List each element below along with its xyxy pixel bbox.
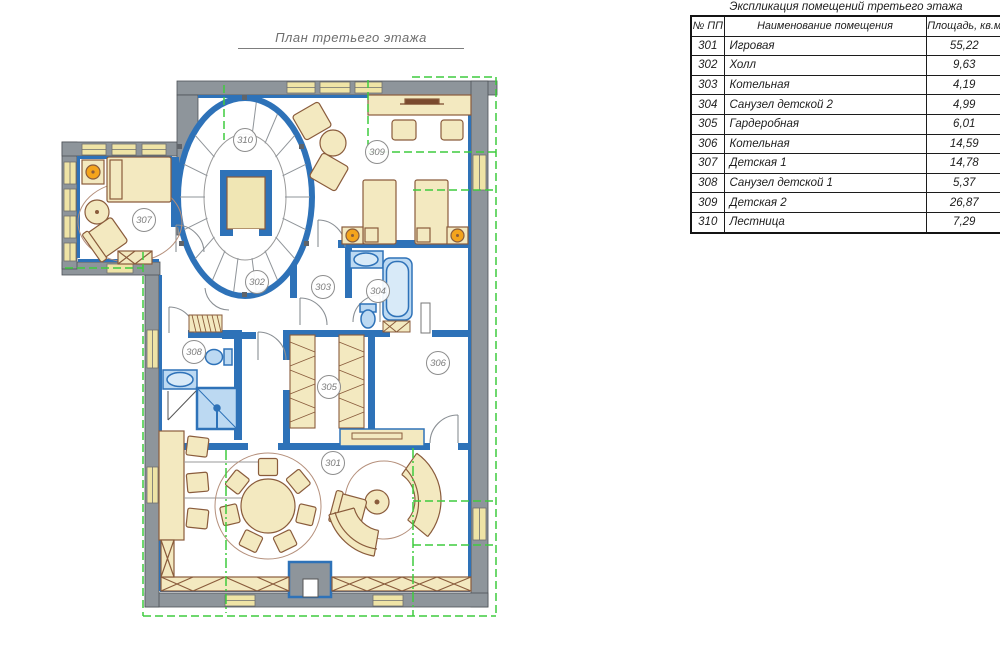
room-badge-306: 306 <box>426 351 450 375</box>
door-leaf-306 <box>421 303 430 333</box>
curved-bench-icon <box>402 453 441 536</box>
room-schedule: Экспликация помещений третьего этажа № П… <box>690 0 1000 234</box>
room-badge-302: 302 <box>245 270 269 294</box>
dining-table-icon <box>241 479 295 533</box>
schedule-row: 301Игровая55,22 <box>691 36 1000 56</box>
curved-bench-icon <box>329 508 379 556</box>
room-307-furniture <box>78 157 182 264</box>
armchair-icon <box>309 152 349 191</box>
room-badge-309: 309 <box>365 140 389 164</box>
schedule-row: 308Санузел детской 15,37 <box>691 173 1000 193</box>
col-number: № ПП <box>691 16 724 36</box>
room-badge-307: 307 <box>132 208 156 232</box>
room-badge-305: 305 <box>317 375 341 399</box>
counter-desk-icon <box>159 431 184 540</box>
plan-title: План третьего этажа <box>238 30 464 49</box>
room-badge-304: 304 <box>366 279 390 303</box>
chair-icon <box>186 508 209 529</box>
schedule-row: 304Санузел детской 24,99 <box>691 95 1000 115</box>
shower-icon <box>197 388 237 429</box>
room-309-furniture <box>292 95 471 244</box>
room-badge-308: 308 <box>182 340 206 364</box>
page: План третьего этажа 301 302 303 304 305 … <box>0 0 1000 666</box>
toilet-icon <box>206 349 233 365</box>
toilet-icon <box>360 304 376 328</box>
room-badge-303: 303 <box>311 275 335 299</box>
chimney-icon <box>289 562 331 597</box>
schedule-row: 306Котельная14,59 <box>691 134 1000 154</box>
room-301-furniture <box>159 429 471 597</box>
col-area: Площадь, кв.м <box>926 16 1000 36</box>
schedule-table: № ПП Наименование помещения Площадь, кв.… <box>690 15 1000 234</box>
round-table-icon <box>320 130 346 156</box>
tv-cabinet-icon <box>340 429 424 446</box>
schedule-row: 310Лестница7,29 <box>691 212 1000 232</box>
schedule-row: 307Детская 114,78 <box>691 154 1000 174</box>
chair-icon <box>186 472 209 493</box>
chair-icon <box>392 120 416 140</box>
schedule-row: 309Детская 226,87 <box>691 193 1000 213</box>
desk-icon <box>368 95 471 115</box>
schedule-row: 302Холл9,63 <box>691 56 1000 76</box>
room-badge-301: 301 <box>321 451 345 475</box>
chair-icon <box>186 436 209 457</box>
schedule-header-row: № ПП Наименование помещения Площадь, кв.… <box>691 16 1000 36</box>
chair-icon <box>441 120 463 140</box>
col-name: Наименование помещения <box>724 16 926 36</box>
schedule-row: 305Гардеробная6,01 <box>691 114 1000 134</box>
spiral-staircase <box>177 95 312 297</box>
schedule-row: 303Котельная4,19 <box>691 75 1000 95</box>
elevator-shaft <box>220 170 272 237</box>
room-badge-310: 310 <box>233 128 257 152</box>
schedule-title: Экспликация помещений третьего этажа <box>690 0 1000 15</box>
